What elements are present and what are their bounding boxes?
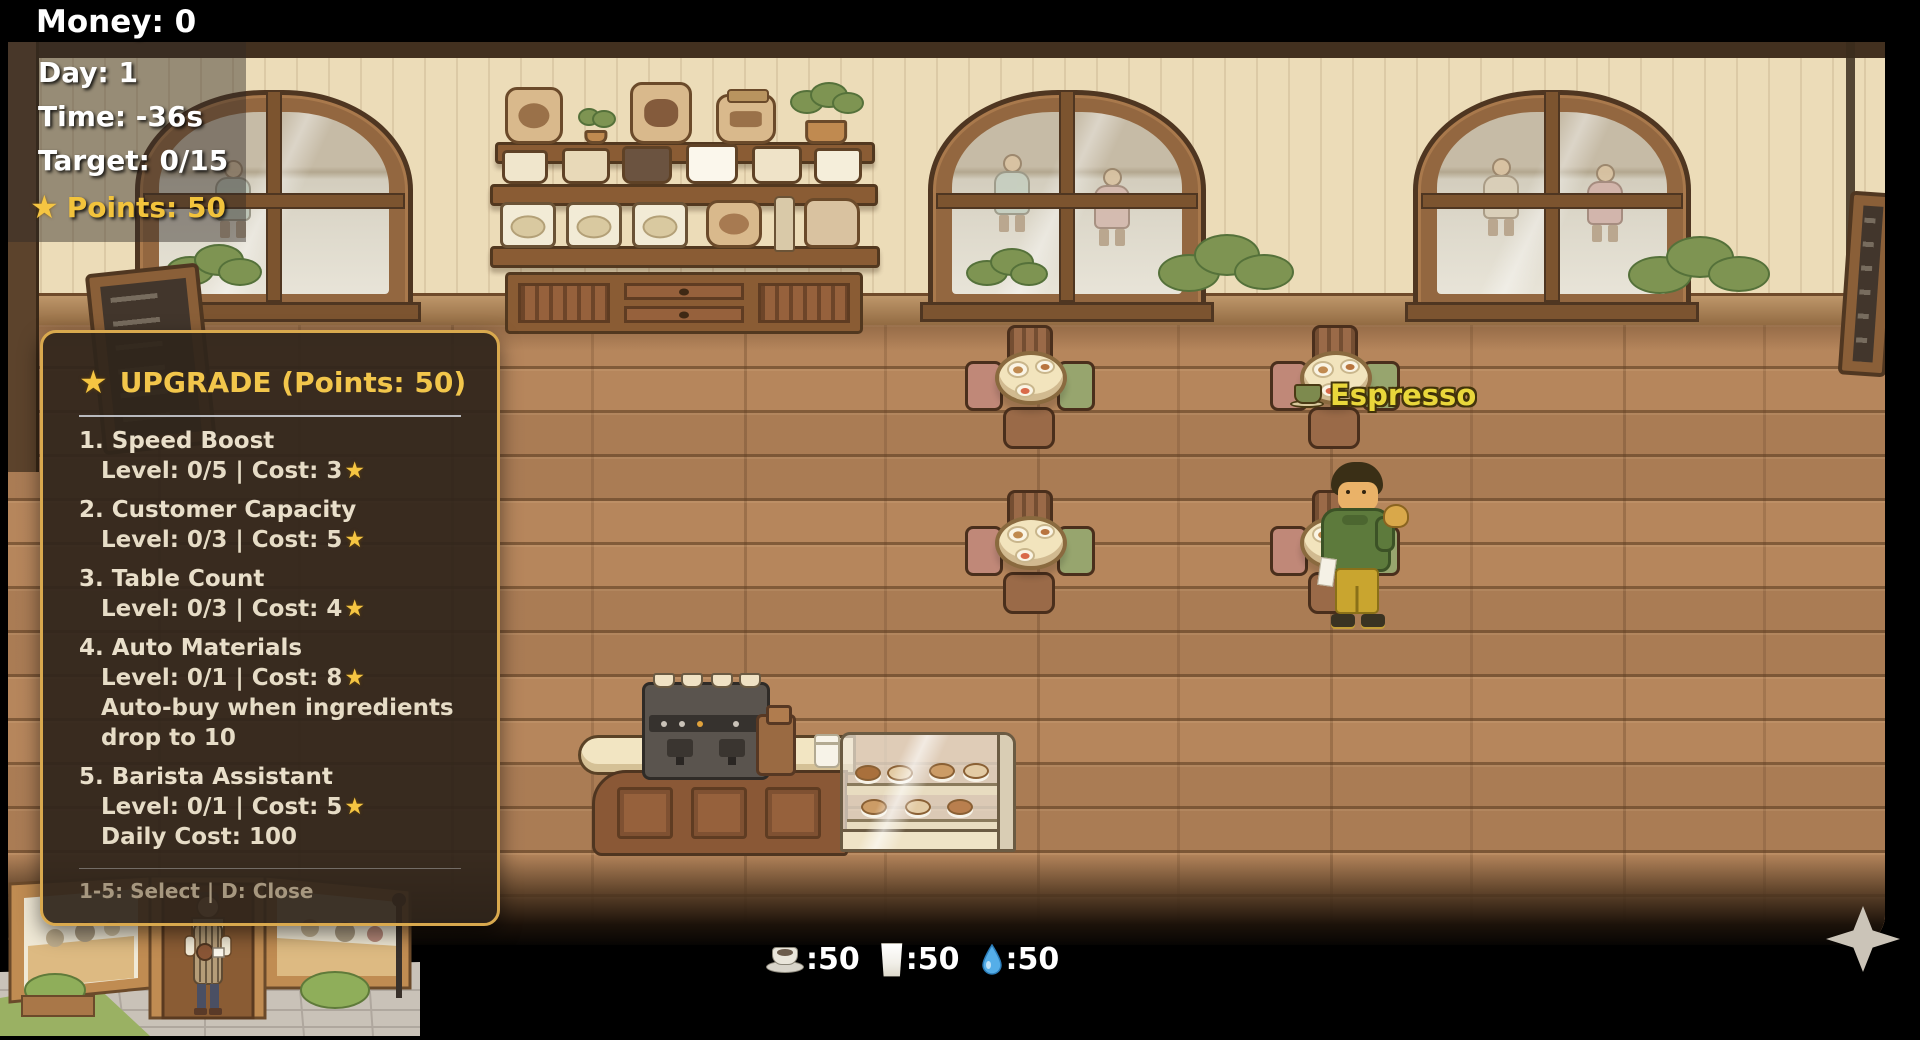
upgrade-item-table-count[interactable]: 3. Table Count Level: 0/3 | Cost: 4★ [79,564,467,624]
cabinet-door [758,283,850,323]
upgrade-item-barista-assistant[interactable]: 5. Barista Assistant Level: 0/1 | Cost: … [79,762,467,852]
table-bottom-left [965,490,1095,614]
resource-coffee: :50 [766,942,860,977]
window-mullion [936,193,1198,209]
cabinet-drawer [624,283,744,300]
plant [1158,234,1293,296]
counter-base [592,770,848,856]
plant [1628,236,1768,298]
pastry-display-case [840,732,1016,852]
star-icon: ★ [344,665,365,691]
cabinet-drawer [624,306,744,323]
shelf-jar [706,200,762,248]
chair [1308,407,1360,449]
table-top [995,516,1067,570]
resource-water: :50 [980,942,1060,977]
window-sill [920,302,1214,322]
machine-control-panel [649,715,763,732]
upgrade-panel: ★ UPGRADE (Points: 50) 1. Speed Boost Le… [40,330,500,926]
machine-cup [653,673,675,688]
star-icon: ★ [344,527,365,553]
upgrade-item-speed-boost[interactable]: 1. Speed Boost Level: 0/5 | Cost: 3★ [79,426,467,486]
shelf-jar [630,82,692,144]
espresso-machine [642,682,770,780]
star-icon: ★ [30,188,59,226]
shelf-unit [490,82,880,338]
order-label: Espresso [1330,378,1476,412]
shelf-mug [814,148,862,184]
customer-napkin [1317,557,1337,587]
coffee-grinder [756,714,796,776]
espresso-cup-icon [1290,382,1324,408]
money-counter: Money: 0 [36,4,196,40]
divider [79,868,461,869]
chair [1003,407,1055,449]
upgrade-item-customer-capacity[interactable]: 2. Customer Capacity Level: 0/3 | Cost: … [79,495,467,555]
shelf-plant [790,82,862,144]
machine-group-head [719,739,745,757]
table-top-left [965,325,1095,449]
order-bubble: Espresso [1290,378,1476,412]
shelf-mug [752,146,802,184]
shelf-jar [716,94,776,144]
table-top [995,351,1067,405]
chair [1003,572,1055,614]
shelf-kettle [622,146,672,184]
water-drop-icon [980,944,1004,976]
customer-snack [1383,504,1409,528]
machine-cup [681,673,703,688]
divider [79,415,461,417]
customer [1313,462,1405,632]
shelf-board [490,246,880,268]
shelf-plant [576,108,616,144]
shelf-bag [804,198,860,248]
takeaway-cup [814,734,840,768]
upgrade-panel-title: ★ UPGRADE (Points: 50) [79,363,467,401]
time-counter: Time: -36s [38,100,203,133]
sideboard-cabinet [505,272,863,334]
upgrade-item-auto-materials[interactable]: 4. Auto Materials Level: 0/1 | Cost: 8★ … [79,633,467,753]
target-counter: Target: 0/15 [38,144,228,177]
shelf-canister [500,202,556,248]
shelf-canister [566,202,622,248]
machine-cup [711,673,733,688]
resource-milk: :50 [880,942,960,977]
resource-bar: :50 :50 :50 [766,942,1059,977]
star-icon: ★ [344,458,365,484]
star-icon: ★ [79,363,108,401]
glass-reflection [843,735,1013,849]
shelf-canister [632,202,688,248]
shelf-mug [502,150,548,184]
upgrade-panel-hint: 1-5: Select | D: Close [79,879,467,903]
milk-glass-icon [880,943,904,977]
shelf-mug [562,148,610,184]
day-counter: Day: 1 [38,56,138,89]
wall-top-trim [8,42,1885,58]
customer-face [1338,482,1378,510]
cabinet-door [518,283,610,323]
star-icon: ★ [344,596,365,622]
customer-shoe [1331,614,1355,627]
machine-group-head [667,739,693,757]
star-icon: ★ [344,794,365,820]
points-counter: ★ Points: 50 [30,188,226,226]
machine-cup [739,673,761,688]
game-stage: Espresso [0,0,1920,1036]
shelf-jar [505,87,563,144]
plant [966,248,1046,288]
shelf-mug [686,144,738,184]
window-sill [1405,302,1699,322]
customer-pants [1335,568,1379,614]
customer-shoe [1361,614,1385,627]
window-mullion [1421,193,1683,209]
shelf-bottle [774,196,795,252]
coffee-cup-icon [766,945,804,975]
